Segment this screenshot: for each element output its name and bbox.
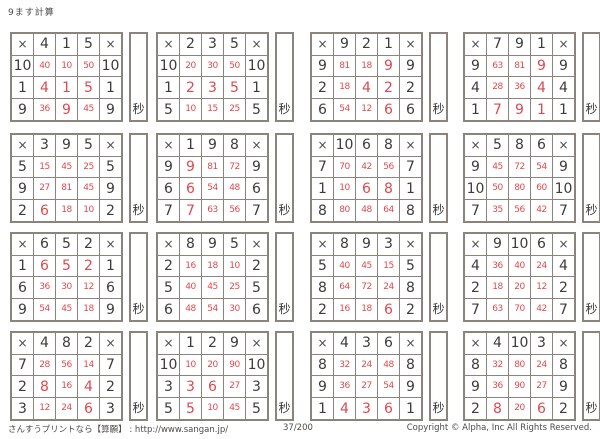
seconds-label: 秒 [278,300,290,320]
times-sign: × [553,33,576,55]
header-number: 1 [180,134,202,156]
answer-cell: 8 [487,398,509,420]
row-multiplier: 6 [311,99,334,121]
times-sign: × [400,134,423,156]
answer-cell: 8 [34,376,56,398]
row-multiplier: 5 [100,156,123,178]
answer-cell: 36 [487,376,509,398]
times-sign: × [311,332,334,354]
answer-cell: 4 [334,398,356,420]
calc-grid-group-15: ×436×832244889362754914361秒 [310,331,448,421]
calc-grid-group-16: ×4103×8328024893690279282062秒 [463,331,600,421]
row-multiplier: 9 [11,178,34,200]
answer-cell: 40 [509,255,531,277]
seconds-label: 秒 [278,100,290,120]
seconds-label: 秒 [278,399,290,419]
multiplication-table: ×1068×7704256711068188048648 [310,133,423,223]
answer-cell: 42 [531,200,553,222]
header-number: 5 [78,33,100,55]
answer-cell: 15 [202,99,224,121]
row-multiplier: 9 [11,299,34,321]
header-number: 9 [202,134,224,156]
seconds-box: 秒 [129,32,148,122]
times-sign: × [157,33,180,55]
answer-cell: 24 [56,398,78,420]
row-multiplier: 3 [157,376,180,398]
answer-cell: 20 [509,398,531,420]
answer-cell: 56 [378,156,400,178]
header-number: 6 [34,233,56,255]
seconds-label: 秒 [585,300,597,320]
row-multiplier: 10 [157,55,180,77]
times-sign: × [400,33,423,55]
row-multiplier: 2 [400,299,423,321]
row-multiplier: 5 [11,156,34,178]
times-sign: × [11,332,34,354]
seconds-box: 秒 [582,232,600,322]
answer-cell: 42 [356,156,378,178]
row-multiplier: 7 [246,200,269,222]
row-multiplier: 7 [464,299,487,321]
answer-cell: 30 [56,277,78,299]
footer-page-number: 37/200 [283,423,313,433]
answer-cell: 72 [356,277,378,299]
answer-cell: 81 [509,55,531,77]
answer-cell: 72 [509,156,531,178]
calc-grid-group-2: ×235×10203050101235151015255秒 [156,32,294,122]
answer-cell: 36 [509,77,531,99]
times-sign: × [246,332,269,354]
answer-cell: 56 [224,200,246,222]
answer-cell: 80 [509,178,531,200]
calc-grid-group-1: ×415×1040105010141519369459秒 [10,32,148,122]
answer-cell: 6 [202,376,224,398]
header-number: 1 [378,33,400,55]
row-multiplier: 5 [246,99,269,121]
answer-cell: 54 [334,99,356,121]
answer-cell: 10 [334,178,356,200]
answer-cell: 40 [34,55,56,77]
row-multiplier: 4 [464,77,487,99]
multiplication-table: ×482×728561472816423122463 [10,331,123,421]
header-number: 4 [487,332,509,354]
answer-cell: 18 [356,299,378,321]
seconds-box: 秒 [582,133,600,223]
row-multiplier: 7 [464,200,487,222]
answer-cell: 54 [202,299,224,321]
header-number: 4 [34,33,56,55]
header-number: 5 [78,134,100,156]
answer-cell: 10 [202,398,224,420]
row-multiplier: 9 [400,55,423,77]
row-multiplier: 9 [311,55,334,77]
footer-copyright: Copyright © Alpha, Inc All Rights Reserv… [407,423,592,433]
answer-cell: 6 [378,99,400,121]
row-multiplier: 2 [100,200,123,222]
row-multiplier: 2 [246,255,269,277]
seconds-label: 秒 [585,201,597,221]
seconds-box: 秒 [129,331,148,421]
row-multiplier: 9 [464,55,487,77]
row-multiplier: 9 [100,299,123,321]
row-multiplier: 7 [157,200,180,222]
row-multiplier: 8 [400,277,423,299]
answer-cell: 18 [56,200,78,222]
row-multiplier: 10 [464,178,487,200]
header-number: 3 [202,33,224,55]
row-multiplier: 1 [11,77,34,99]
calc-grid-group-9: ×652×165216363012695445189秒 [10,232,148,322]
seconds-box: 秒 [129,232,148,322]
header-number: 10 [509,233,531,255]
seconds-box: 秒 [275,32,294,122]
times-sign: × [100,33,123,55]
times-sign: × [11,33,34,55]
row-multiplier: 4 [553,255,576,277]
answer-cell: 45 [78,178,100,200]
multiplication-table: ×235×10203050101235151015255 [156,32,269,122]
answer-cell: 20 [180,55,202,77]
row-multiplier: 2 [311,77,334,99]
answer-cell: 81 [202,156,224,178]
row-multiplier: 8 [400,354,423,376]
answer-cell: 50 [224,55,246,77]
row-multiplier: 3 [246,376,269,398]
answer-cell: 27 [356,376,378,398]
row-multiplier: 5 [311,255,334,277]
answer-cell: 10 [180,354,202,376]
answer-cell: 48 [356,200,378,222]
header-number: 6 [531,233,553,255]
answer-cell: 63 [487,299,509,321]
row-multiplier: 4 [464,255,487,277]
answer-cell: 4 [356,77,378,99]
seconds-box: 秒 [275,133,294,223]
answer-cell: 45 [56,156,78,178]
times-sign: × [311,233,334,255]
calc-grid-group-5: ×395×51545255927814592618102秒 [10,133,148,223]
header-number: 9 [356,233,378,255]
row-multiplier: 2 [11,376,34,398]
answer-cell: 28 [34,354,56,376]
answer-cell: 40 [334,255,356,277]
calc-grid-group-13: ×482×728561472816423122463秒 [10,331,148,421]
answer-cell: 20 [202,354,224,376]
answer-cell: 6 [531,398,553,420]
header-number: 2 [356,33,378,55]
header-number: 3 [356,332,378,354]
times-sign: × [246,134,269,156]
times-sign: × [11,134,34,156]
answer-cell: 27 [224,376,246,398]
answer-cell: 18 [202,255,224,277]
header-number: 10 [334,134,356,156]
answer-cell: 24 [356,354,378,376]
calc-grid-group-3: ×921×98118992184226541266秒 [310,32,448,122]
multiplication-table: ×921×98118992184226541266 [310,32,423,122]
seconds-box: 秒 [429,133,448,223]
row-multiplier: 9 [464,376,487,398]
answer-cell: 4 [78,376,100,398]
row-multiplier: 5 [400,255,423,277]
answer-cell: 4 [531,77,553,99]
row-multiplier: 2 [464,398,487,420]
row-multiplier: 2 [553,398,576,420]
row-multiplier: 2 [400,77,423,99]
answer-cell: 24 [378,277,400,299]
answer-cell: 64 [334,277,356,299]
row-multiplier: 10 [100,55,123,77]
row-multiplier: 3 [100,398,123,420]
answer-cell: 2 [378,77,400,99]
answer-cell: 6 [378,398,400,420]
row-multiplier: 9 [311,376,334,398]
header-number: 8 [378,134,400,156]
calc-grid-group-11: ×893×54045155864722482161862秒 [310,232,448,322]
answer-cell: 16 [56,376,78,398]
header-number: 8 [224,134,246,156]
row-multiplier: 9 [11,99,34,121]
answer-cell: 14 [78,354,100,376]
row-multiplier: 5 [246,398,269,420]
answer-cell: 28 [487,77,509,99]
seconds-label: 秒 [585,399,597,419]
header-number: 5 [56,233,78,255]
header-number: 9 [202,233,224,255]
answer-cell: 20 [509,277,531,299]
answer-cell: 12 [34,398,56,420]
times-sign: × [11,233,34,255]
answer-cell: 6 [378,299,400,321]
answer-cell: 36 [34,99,56,121]
worksheet-page: 9ます計算 ×415×1040105010141519369459秒×235×1… [0,0,600,439]
answer-cell: 8 [378,178,400,200]
header-number: 2 [180,33,202,55]
seconds-box: 秒 [275,331,294,421]
multiplication-table: ×895×216181025404525564854306 [156,232,269,322]
answer-cell: 4 [34,77,56,99]
answer-cell: 36 [334,376,356,398]
header-number: 7 [487,33,509,55]
answer-cell: 90 [509,376,531,398]
seconds-box: 秒 [429,331,448,421]
header-number: 8 [180,233,202,255]
header-number: 2 [202,332,224,354]
row-multiplier: 1 [400,398,423,420]
header-number: 8 [509,134,531,156]
row-multiplier: 6 [157,178,180,200]
times-sign: × [553,233,576,255]
header-number: 2 [78,233,100,255]
row-multiplier: 8 [311,200,334,222]
header-number: 8 [56,332,78,354]
answer-cell: 15 [34,156,56,178]
answer-cell: 48 [378,354,400,376]
row-multiplier: 6 [400,99,423,121]
multiplication-table: ×652×165216363012695445189 [10,232,123,322]
row-multiplier: 9 [100,99,123,121]
row-multiplier: 10 [157,354,180,376]
footer-site-text: さんすうプリントなら【算願】 : http://www.sangan.jp/ [8,423,228,435]
times-sign: × [400,233,423,255]
header-number: 9 [487,233,509,255]
row-multiplier: 6 [100,277,123,299]
answer-cell: 50 [487,178,509,200]
answer-cell: 56 [509,200,531,222]
answer-cell: 90 [224,354,246,376]
times-sign: × [100,233,123,255]
seconds-box: 秒 [429,32,448,122]
times-sign: × [311,33,334,55]
answer-cell: 10 [224,255,246,277]
header-number: 9 [224,332,246,354]
answer-cell: 9 [180,156,202,178]
row-multiplier: 9 [553,156,576,178]
answer-cell: 25 [224,277,246,299]
row-multiplier: 10 [246,354,269,376]
answer-cell: 5 [180,398,202,420]
row-multiplier: 7 [100,354,123,376]
row-multiplier: 2 [311,299,334,321]
times-sign: × [246,33,269,55]
row-multiplier: 9 [553,55,576,77]
header-number: 1 [56,33,78,55]
header-number: 6 [378,332,400,354]
calc-grid-group-10: ×895×216181025404525564854306秒 [156,232,294,322]
answer-cell: 5 [56,255,78,277]
multiplication-table: ×198×998172966544867763567 [156,133,269,223]
header-number: 6 [531,134,553,156]
row-multiplier: 5 [157,99,180,121]
header-number: 3 [378,233,400,255]
times-sign: × [464,33,487,55]
row-multiplier: 1 [400,178,423,200]
header-number: 10 [509,332,531,354]
row-multiplier: 10 [11,55,34,77]
header-number: 4 [34,332,56,354]
answer-cell: 30 [224,299,246,321]
times-sign: × [157,134,180,156]
answer-cell: 2 [180,77,202,99]
row-multiplier: 3 [11,398,34,420]
header-number: 3 [34,134,56,156]
answer-cell: 63 [487,55,509,77]
answer-cell: 12 [356,99,378,121]
row-multiplier: 2 [100,376,123,398]
seconds-label: 秒 [432,100,444,120]
row-multiplier: 8 [311,354,334,376]
row-multiplier: 10 [246,55,269,77]
answer-cell: 45 [56,299,78,321]
answer-cell: 18 [356,55,378,77]
answer-cell: 80 [334,200,356,222]
row-multiplier: 7 [11,354,34,376]
answer-cell: 15 [378,255,400,277]
row-multiplier: 9 [157,156,180,178]
multiplication-table: ×791×9638199428364417911 [463,32,576,122]
times-sign: × [553,134,576,156]
answer-cell: 6 [34,200,56,222]
seconds-box: 秒 [275,232,294,322]
multiplication-table: ×893×54045155864722482161862 [310,232,423,322]
times-sign: × [464,134,487,156]
multiplication-table: ×4103×8328024893690279282062 [463,331,576,421]
answer-cell: 16 [334,299,356,321]
row-multiplier: 6 [11,277,34,299]
multiplication-table: ×9106×436402442182012276370427 [463,232,576,322]
times-sign: × [553,332,576,354]
row-multiplier: 5 [157,398,180,420]
answer-cell: 50 [78,55,100,77]
header-number: 2 [78,332,100,354]
answer-cell: 64 [378,200,400,222]
calc-grid-group-14: ×129×10102090103362735510455秒 [156,331,294,421]
times-sign: × [100,332,123,354]
answer-cell: 54 [34,299,56,321]
row-multiplier: 9 [100,178,123,200]
row-multiplier: 1 [311,398,334,420]
seconds-box: 秒 [582,331,600,421]
answer-cell: 45 [78,99,100,121]
calc-grid-group-6: ×198×998172966544867763567秒 [156,133,294,223]
row-multiplier: 1 [311,178,334,200]
answer-cell: 7 [487,99,509,121]
row-multiplier: 5 [157,277,180,299]
header-number: 9 [334,33,356,55]
answer-cell: 48 [180,299,202,321]
row-multiplier: 6 [157,299,180,321]
header-number: 5 [224,33,246,55]
calc-grid-group-8: ×586×94572549105080601073556427秒 [463,133,600,223]
answer-cell: 54 [202,178,224,200]
answer-cell: 5 [78,77,100,99]
answer-cell: 42 [531,299,553,321]
row-multiplier: 1 [100,77,123,99]
answer-cell: 56 [56,354,78,376]
seconds-label: 秒 [432,399,444,419]
row-multiplier: 9 [400,376,423,398]
multiplication-table: ×395×51545255927814592618102 [10,133,123,223]
row-multiplier: 8 [464,354,487,376]
row-multiplier: 2 [157,255,180,277]
answer-cell: 18 [78,299,100,321]
calc-grid-group-12: ×9106×436402442182012276370427秒 [463,232,600,322]
answer-cell: 5 [224,77,246,99]
header-number: 3 [531,332,553,354]
answer-cell: 12 [78,277,100,299]
answer-cell: 25 [224,99,246,121]
answer-cell: 54 [531,156,553,178]
answer-cell: 45 [224,398,246,420]
row-multiplier: 2 [464,277,487,299]
row-multiplier: 2 [553,277,576,299]
answer-cell: 24 [531,354,553,376]
header-number: 4 [334,332,356,354]
answer-cell: 6 [356,178,378,200]
row-multiplier: 6 [246,178,269,200]
answer-cell: 63 [202,200,224,222]
seconds-label: 秒 [432,201,444,221]
answer-cell: 1 [531,99,553,121]
answer-cell: 36 [487,255,509,277]
multiplication-table: ×415×1040105010141519369459 [10,32,123,122]
times-sign: × [464,332,487,354]
answer-cell: 6 [34,255,56,277]
row-multiplier: 9 [246,156,269,178]
seconds-label: 秒 [585,100,597,120]
seconds-label: 秒 [132,201,144,221]
row-multiplier: 9 [553,376,576,398]
